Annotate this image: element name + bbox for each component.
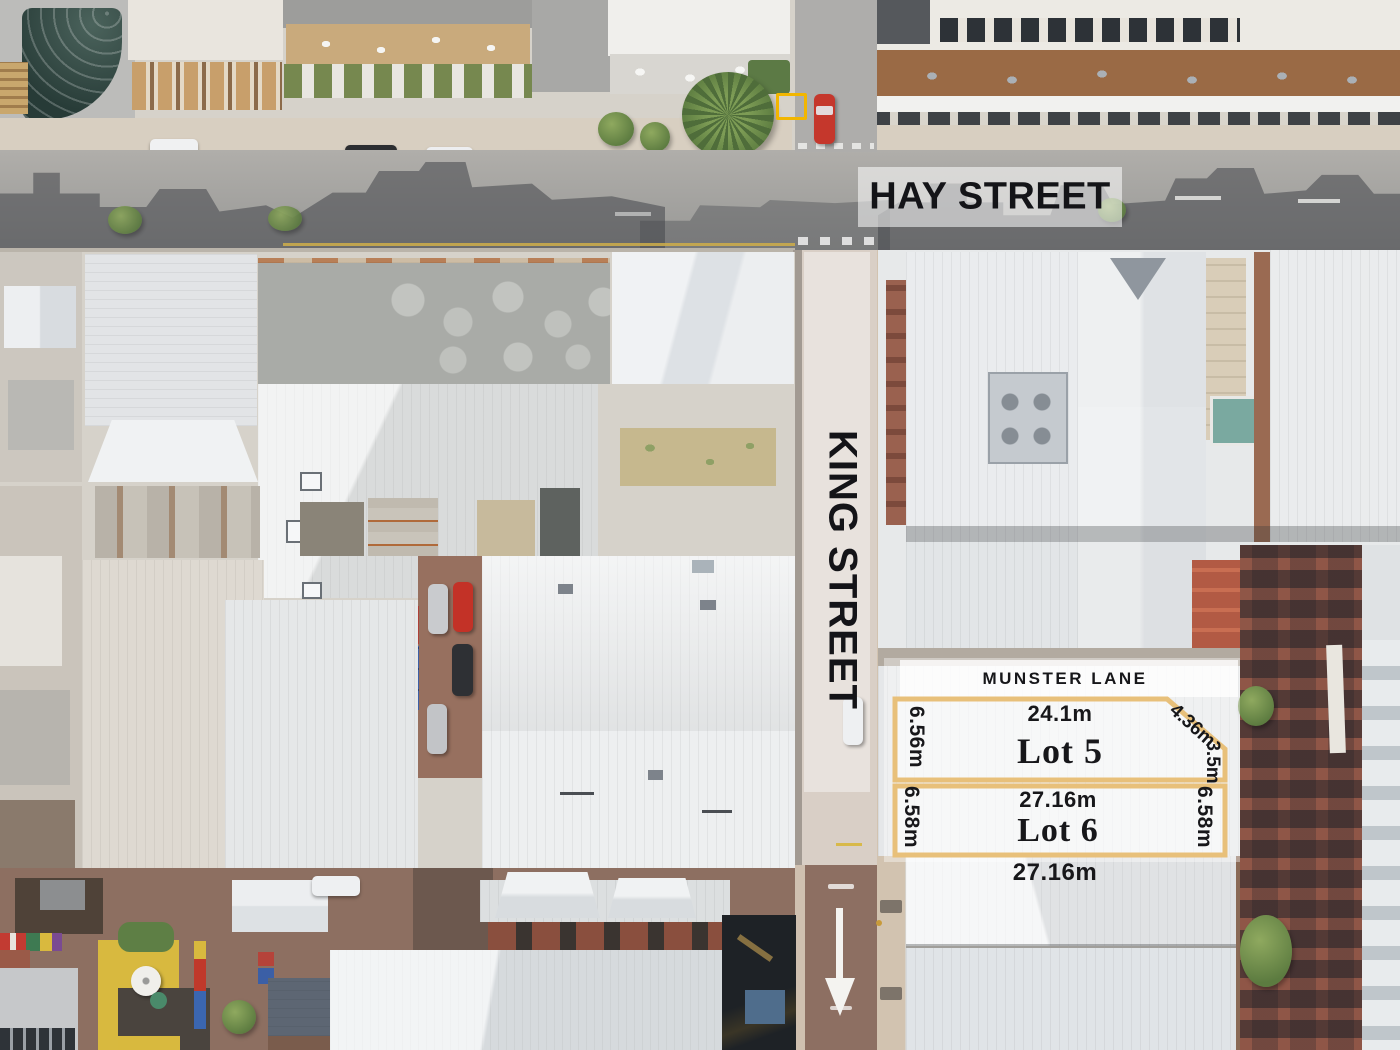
lot5-top-measurement: 24.1m [1028,701,1093,727]
lot6-top-measurement: 27.16m [1019,787,1097,813]
hay-street-label: HAY STREET [869,176,1111,219]
lot-boundaries [0,0,1400,1050]
lot6-left-measurement: 6.58m [899,786,923,848]
aerial-photo-scene: HAY STREET KING STREET MUNSTER LANE 24.1… [0,0,1400,1050]
lot6-name: Lot 6 [1017,812,1099,850]
lot5-right-measurement: 3.5m [1201,740,1223,783]
lot5-name: Lot 5 [1017,730,1103,772]
lot6-right-measurement: 6.58m [1192,786,1216,848]
highlight-square [776,93,807,120]
king-street-label: KING STREET [820,430,865,710]
lot6-bottom-measurement: 27.16m [1013,859,1097,887]
lot5-left-measurement: 6.56m [904,706,928,768]
munster-lane-label: MUNSTER LANE [982,669,1147,689]
